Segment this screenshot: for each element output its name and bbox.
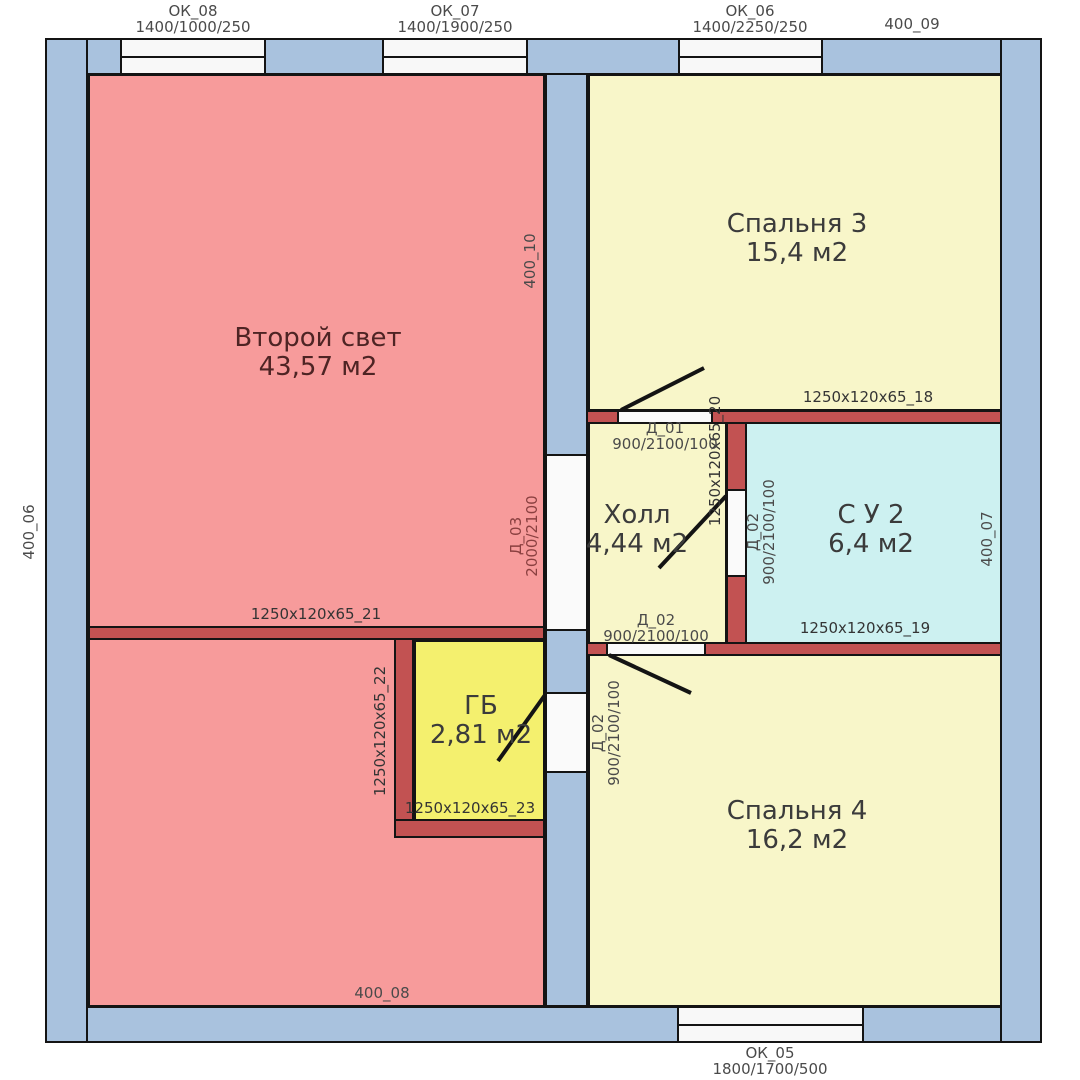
wall-left-exterior <box>45 38 88 1043</box>
partition-label-21: 1250x120x65_21 <box>251 606 381 622</box>
wall-label-400-08: 400_08 <box>354 985 409 1001</box>
door-label-d02-bedroom4: Д_02 900/2100/100 <box>603 612 709 644</box>
door-label-d03: Д_03 2000/2100 <box>508 495 540 576</box>
room-label-bedroom-4: Спальня 4 16,2 м2 <box>727 797 867 855</box>
window-ok06 <box>678 38 823 75</box>
door-label-d01: Д_01 900/2100/100 <box>612 420 718 452</box>
room-label-su2: С У 2 6,4 м2 <box>828 501 914 559</box>
window-label-ok05: ОК_05 1800/1700/500 <box>712 1045 827 1077</box>
door-name: Д_02 <box>745 479 761 585</box>
window-name: ОК_05 <box>712 1045 827 1061</box>
door-size: 900/2100/100 <box>606 680 622 786</box>
window-name: ОК_08 <box>135 3 250 19</box>
door-size: 900/2100/100 <box>761 479 777 585</box>
room-name: Спальня 4 <box>727 797 867 826</box>
door-name: Д_02 <box>590 680 606 786</box>
room-area: 4,44 м2 <box>586 530 688 559</box>
window-ok05 <box>677 1006 864 1043</box>
room-area: 16,2 м2 <box>727 826 867 855</box>
room-label-hall: Холл 4,44 м2 <box>586 501 688 559</box>
room-area: 6,4 м2 <box>828 530 914 559</box>
room-name: ГБ <box>430 692 532 721</box>
door-opening-d03 <box>545 454 588 631</box>
door-size: 900/2100/100 <box>612 436 718 452</box>
window-label-ok07: ОК_07 1400/1900/250 <box>397 3 512 35</box>
window-mullion <box>679 1024 862 1026</box>
wall-label-400-09: 400_09 <box>884 16 939 32</box>
window-size: 1400/1900/250 <box>397 19 512 35</box>
door-size: 900/2100/100 <box>603 628 709 644</box>
door-name: Д_02 <box>603 612 709 628</box>
room-area: 15,4 м2 <box>727 239 867 268</box>
wall-gb-bottom-partition <box>394 819 545 838</box>
room-area: 2,81 м2 <box>430 721 532 750</box>
door-label-d02-su2: Д_02 900/2100/100 <box>745 479 777 585</box>
window-ok08 <box>120 38 266 75</box>
partition-label-22: 1250x120x65_22 <box>372 666 388 796</box>
wall-label-400-07: 400_07 <box>979 511 995 566</box>
room-name: С У 2 <box>828 501 914 530</box>
door-name: Д_01 <box>612 420 718 436</box>
door-opening-d02-gb <box>545 692 588 773</box>
window-name: ОК_06 <box>692 3 807 19</box>
room-label-bedroom-3: Спальня 3 15,4 м2 <box>727 210 867 268</box>
window-mullion <box>122 56 264 58</box>
door-label-d02-gb: Д_02 900/2100/100 <box>590 680 622 786</box>
window-size: 1800/1700/500 <box>712 1061 827 1077</box>
partition-label-19: 1250x120x65_19 <box>800 620 930 636</box>
wall-label-400-06: 400_06 <box>21 504 37 559</box>
wall-label-400-10: 400_10 <box>522 233 538 288</box>
window-size: 1400/1000/250 <box>135 19 250 35</box>
room-name: Второй свет <box>234 324 401 353</box>
room-area: 43,57 м2 <box>234 353 401 382</box>
room-name: Холл <box>586 501 688 530</box>
room-label-gb: ГБ 2,81 м2 <box>430 692 532 750</box>
window-label-ok08: ОК_08 1400/1000/250 <box>135 3 250 35</box>
window-size: 1400/2250/250 <box>692 19 807 35</box>
partition-label-20: 1250x120x65_20 <box>707 396 723 526</box>
window-mullion <box>384 56 526 58</box>
door-name: Д_03 <box>508 495 524 576</box>
wall-right-exterior <box>1000 38 1042 1043</box>
wall-bottom-exterior <box>45 1006 1042 1043</box>
room-name: Спальня 3 <box>727 210 867 239</box>
wall-partition-21 <box>88 626 545 640</box>
window-ok07 <box>382 38 528 75</box>
door-size: 2000/2100 <box>524 495 540 576</box>
partition-label-18: 1250x120x65_18 <box>803 389 933 405</box>
window-mullion <box>680 56 821 58</box>
floor-plan: ОК_08 1400/1000/250 ОК_07 1400/1900/250 … <box>0 0 1080 1080</box>
window-name: ОК_07 <box>397 3 512 19</box>
room-second-light <box>88 74 545 1007</box>
partition-label-23: 1250x120x65_23 <box>405 800 535 816</box>
room-label-second-light: Второй свет 43,57 м2 <box>234 324 401 382</box>
window-label-ok06: ОК_06 1400/2250/250 <box>692 3 807 35</box>
